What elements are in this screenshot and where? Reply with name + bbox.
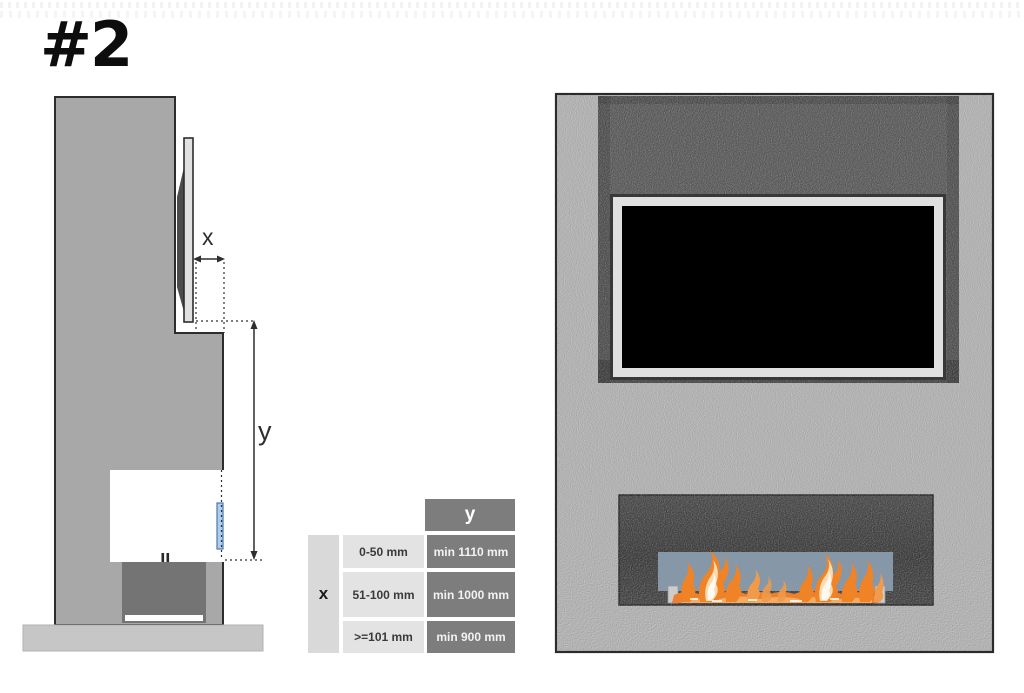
ember-sparkle bbox=[712, 600, 722, 602]
tv-screen bbox=[622, 206, 934, 368]
burner-tick-right bbox=[167, 553, 170, 562]
floor-plinth bbox=[23, 625, 263, 651]
burner-tick-left bbox=[162, 553, 165, 562]
dimension-x-label: x bbox=[202, 224, 214, 251]
table-x-range-row3: >=101 mm bbox=[343, 621, 424, 653]
ember-sparkle bbox=[748, 599, 757, 601]
table-y-min-row1: min 1110 mm bbox=[427, 535, 515, 568]
table-header-x: x bbox=[308, 535, 339, 653]
dimension-y-label: y bbox=[258, 416, 272, 447]
page: #2 bbox=[0, 0, 1024, 693]
ember-sparkle bbox=[690, 598, 698, 600]
dimension-y-arrowhead-bottom bbox=[251, 551, 258, 560]
side-view-figure bbox=[23, 97, 263, 651]
fireplace-glass-side bbox=[217, 503, 223, 549]
table-header-y: y bbox=[425, 499, 515, 531]
dimension-x-arrowhead-right bbox=[217, 256, 225, 263]
burner-housing-side bbox=[122, 562, 206, 623]
ember-sparkle bbox=[830, 598, 839, 600]
dimension-x-arrowhead-left bbox=[193, 256, 201, 263]
front-view-figure bbox=[556, 94, 993, 652]
table-x-range-row2: 51-100 mm bbox=[343, 572, 424, 617]
table-y-min-row2: min 1000 mm bbox=[427, 572, 515, 617]
burner-housing-stripe bbox=[125, 615, 203, 621]
firebox-recess-side bbox=[110, 470, 224, 562]
tv-mount-side bbox=[177, 167, 184, 312]
ember-sparkle bbox=[790, 600, 802, 602]
tv-panel-side bbox=[184, 138, 193, 322]
table-x-range-row1: 0-50 mm bbox=[343, 535, 424, 568]
table-y-min-row3: min 900 mm bbox=[427, 621, 515, 653]
